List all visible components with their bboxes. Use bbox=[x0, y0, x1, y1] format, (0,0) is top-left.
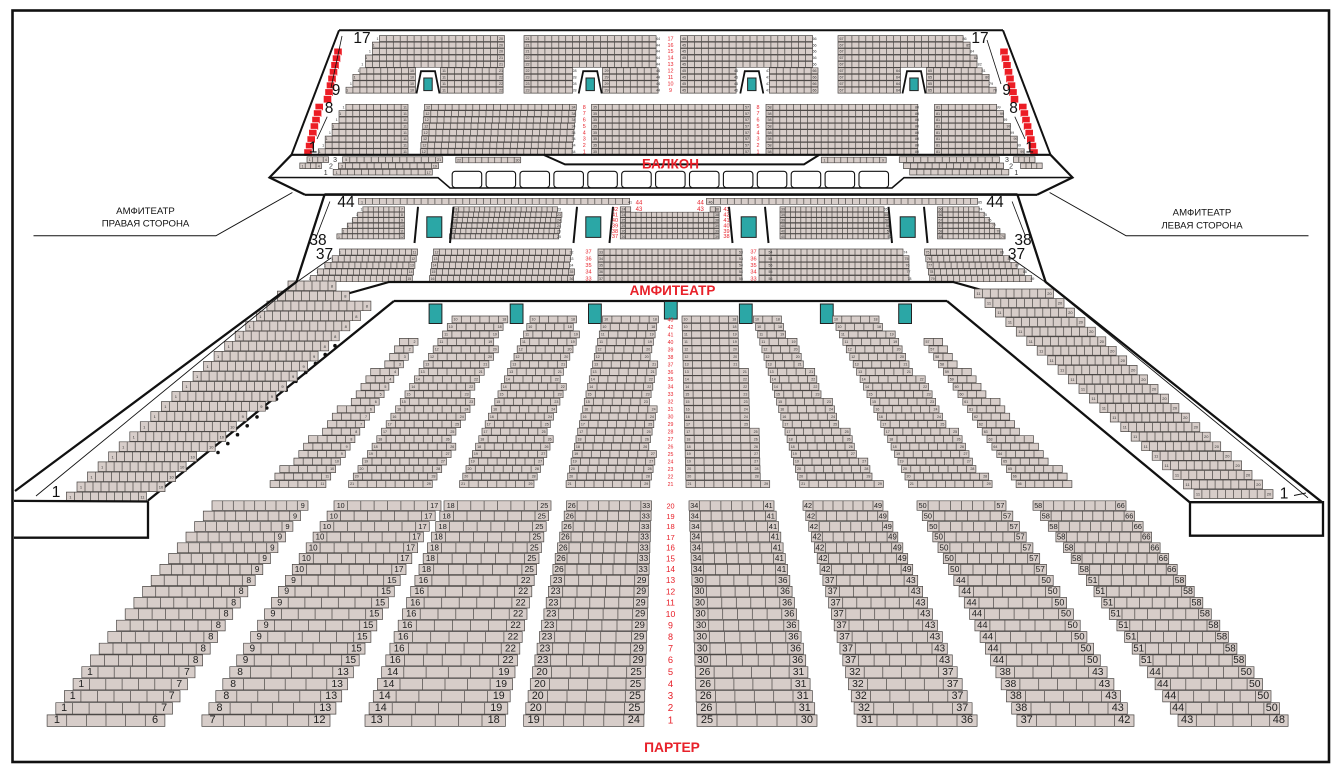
svg-text:4: 4 bbox=[318, 164, 320, 168]
svg-text:61: 61 bbox=[964, 400, 968, 404]
svg-text:26: 26 bbox=[668, 445, 674, 451]
svg-text:50: 50 bbox=[1067, 619, 1077, 630]
svg-text:19: 19 bbox=[650, 333, 654, 337]
svg-text:16: 16 bbox=[397, 407, 401, 411]
svg-text:66: 66 bbox=[1125, 512, 1133, 521]
svg-text:26: 26 bbox=[754, 445, 758, 449]
svg-text:26: 26 bbox=[700, 679, 712, 690]
svg-text:25: 25 bbox=[535, 522, 543, 531]
svg-text:12: 12 bbox=[424, 131, 428, 135]
svg-text:29: 29 bbox=[604, 82, 608, 86]
svg-text:57: 57 bbox=[745, 137, 749, 141]
svg-text:37: 37 bbox=[750, 250, 756, 256]
svg-text:20: 20 bbox=[1068, 310, 1073, 315]
svg-text:10: 10 bbox=[532, 318, 536, 322]
svg-text:75: 75 bbox=[926, 250, 930, 254]
svg-text:26: 26 bbox=[700, 690, 712, 702]
svg-text:20: 20 bbox=[687, 475, 691, 479]
svg-text:1: 1 bbox=[302, 164, 304, 168]
svg-text:25: 25 bbox=[744, 422, 748, 426]
svg-text:1: 1 bbox=[376, 37, 378, 41]
svg-text:25: 25 bbox=[629, 690, 641, 702]
svg-text:58: 58 bbox=[1072, 554, 1082, 563]
svg-text:45: 45 bbox=[682, 82, 686, 86]
svg-text:56: 56 bbox=[939, 213, 943, 217]
svg-text:20: 20 bbox=[499, 43, 503, 47]
svg-text:10: 10 bbox=[757, 325, 761, 329]
svg-text:58: 58 bbox=[1225, 643, 1236, 654]
svg-text:12: 12 bbox=[668, 69, 674, 75]
svg-text:29: 29 bbox=[632, 655, 644, 666]
svg-text:33: 33 bbox=[638, 564, 648, 574]
svg-text:АМФИТЕАТР: АМФИТЕАТР bbox=[1173, 208, 1232, 219]
svg-text:1: 1 bbox=[332, 125, 334, 129]
svg-text:39: 39 bbox=[781, 213, 785, 217]
svg-text:21: 21 bbox=[499, 56, 503, 60]
svg-text:44: 44 bbox=[656, 43, 660, 47]
svg-text:45: 45 bbox=[682, 43, 686, 47]
svg-text:9: 9 bbox=[1002, 82, 1011, 99]
svg-text:20: 20 bbox=[571, 467, 575, 471]
svg-text:22: 22 bbox=[508, 632, 519, 643]
svg-text:21: 21 bbox=[461, 482, 465, 486]
svg-text:76: 76 bbox=[988, 219, 992, 223]
svg-text:10: 10 bbox=[230, 424, 235, 429]
svg-text:23: 23 bbox=[927, 392, 931, 396]
svg-text:67: 67 bbox=[839, 63, 843, 67]
svg-text:24: 24 bbox=[937, 415, 941, 419]
svg-text:60: 60 bbox=[960, 392, 964, 396]
svg-text:1: 1 bbox=[325, 137, 327, 141]
svg-text:14: 14 bbox=[685, 385, 689, 389]
svg-text:63: 63 bbox=[984, 430, 988, 434]
svg-text:28: 28 bbox=[648, 467, 652, 471]
svg-text:38: 38 bbox=[715, 213, 719, 217]
svg-text:17: 17 bbox=[784, 422, 788, 426]
svg-text:82: 82 bbox=[978, 63, 982, 67]
svg-text:30: 30 bbox=[695, 597, 705, 607]
svg-text:24: 24 bbox=[548, 415, 552, 419]
svg-text:12: 12 bbox=[400, 235, 404, 239]
svg-text:14: 14 bbox=[506, 377, 510, 381]
svg-text:1: 1 bbox=[668, 715, 674, 726]
svg-text:29: 29 bbox=[604, 88, 608, 92]
svg-text:21: 21 bbox=[499, 63, 503, 67]
svg-text:17: 17 bbox=[882, 422, 886, 426]
svg-text:9: 9 bbox=[270, 609, 275, 619]
svg-text:25: 25 bbox=[630, 667, 642, 678]
svg-text:22: 22 bbox=[516, 597, 526, 607]
svg-text:81: 81 bbox=[936, 131, 940, 135]
svg-text:85: 85 bbox=[966, 43, 970, 47]
svg-text:66: 66 bbox=[812, 43, 816, 47]
svg-text:58: 58 bbox=[1200, 609, 1210, 619]
svg-text:50: 50 bbox=[934, 533, 943, 542]
svg-text:58: 58 bbox=[1064, 543, 1073, 552]
svg-text:57: 57 bbox=[745, 106, 749, 110]
svg-text:1: 1 bbox=[339, 250, 341, 254]
svg-text:20: 20 bbox=[1100, 339, 1105, 344]
svg-text:38: 38 bbox=[715, 208, 719, 212]
svg-text:13: 13 bbox=[337, 667, 349, 678]
svg-text:58: 58 bbox=[1042, 512, 1050, 521]
svg-text:22: 22 bbox=[668, 475, 674, 481]
svg-text:4: 4 bbox=[668, 679, 673, 690]
svg-text:20: 20 bbox=[1173, 406, 1178, 411]
svg-text:6: 6 bbox=[152, 714, 158, 726]
svg-text:19: 19 bbox=[666, 512, 674, 521]
svg-text:11: 11 bbox=[684, 340, 688, 344]
svg-text:20: 20 bbox=[797, 467, 801, 471]
svg-text:21: 21 bbox=[525, 50, 529, 54]
svg-text:15: 15 bbox=[387, 575, 397, 585]
svg-text:37: 37 bbox=[952, 690, 964, 702]
svg-text:25: 25 bbox=[540, 501, 548, 510]
svg-text:58: 58 bbox=[1208, 619, 1218, 630]
svg-text:54: 54 bbox=[739, 264, 743, 268]
svg-text:9: 9 bbox=[278, 533, 282, 542]
svg-text:23: 23 bbox=[551, 586, 561, 596]
svg-text:31: 31 bbox=[797, 690, 809, 702]
svg-text:35: 35 bbox=[593, 144, 597, 148]
svg-text:28: 28 bbox=[983, 475, 987, 479]
svg-text:14: 14 bbox=[774, 385, 778, 389]
svg-text:22: 22 bbox=[457, 159, 461, 163]
svg-text:13: 13 bbox=[319, 702, 331, 714]
svg-text:9: 9 bbox=[291, 575, 296, 585]
svg-text:12: 12 bbox=[598, 348, 602, 352]
svg-text:66: 66 bbox=[1142, 533, 1151, 542]
svg-text:45: 45 bbox=[682, 88, 686, 92]
svg-text:28: 28 bbox=[436, 467, 440, 471]
svg-text:50: 50 bbox=[924, 512, 932, 521]
svg-text:16: 16 bbox=[415, 586, 425, 596]
svg-text:74: 74 bbox=[979, 208, 983, 212]
svg-text:17: 17 bbox=[406, 543, 415, 552]
svg-text:12: 12 bbox=[848, 348, 852, 352]
svg-text:21: 21 bbox=[483, 363, 487, 367]
svg-text:22: 22 bbox=[525, 69, 529, 73]
svg-text:44: 44 bbox=[697, 200, 704, 206]
svg-text:20: 20 bbox=[1256, 482, 1261, 487]
svg-text:18: 18 bbox=[578, 437, 582, 441]
svg-text:9: 9 bbox=[250, 643, 255, 654]
svg-text:19: 19 bbox=[571, 340, 575, 344]
svg-text:80: 80 bbox=[985, 76, 989, 80]
svg-text:25: 25 bbox=[525, 564, 535, 574]
svg-text:81: 81 bbox=[936, 112, 940, 116]
svg-text:37: 37 bbox=[947, 679, 959, 690]
svg-text:40: 40 bbox=[781, 235, 785, 239]
svg-text:49: 49 bbox=[879, 512, 887, 521]
svg-text:3: 3 bbox=[333, 157, 337, 164]
svg-text:15: 15 bbox=[351, 643, 362, 654]
svg-text:19: 19 bbox=[498, 667, 510, 678]
svg-text:86: 86 bbox=[962, 37, 966, 41]
svg-text:37: 37 bbox=[828, 586, 838, 596]
svg-text:20: 20 bbox=[1079, 320, 1084, 325]
svg-text:57: 57 bbox=[1029, 554, 1039, 563]
svg-text:18: 18 bbox=[791, 445, 795, 449]
svg-text:1: 1 bbox=[373, 43, 375, 47]
svg-text:44: 44 bbox=[656, 63, 660, 67]
svg-text:1: 1 bbox=[369, 50, 371, 54]
svg-text:8: 8 bbox=[355, 430, 357, 434]
svg-text:20: 20 bbox=[499, 37, 503, 41]
svg-text:80: 80 bbox=[915, 137, 919, 141]
svg-text:34: 34 bbox=[571, 118, 575, 122]
svg-text:39: 39 bbox=[668, 347, 674, 353]
svg-text:30: 30 bbox=[516, 159, 520, 163]
svg-text:51: 51 bbox=[1118, 619, 1128, 630]
svg-text:17: 17 bbox=[383, 430, 387, 434]
svg-text:20: 20 bbox=[1110, 348, 1115, 353]
svg-text:36: 36 bbox=[792, 655, 804, 666]
svg-text:20: 20 bbox=[499, 50, 503, 54]
svg-text:16: 16 bbox=[406, 609, 416, 619]
svg-text:81: 81 bbox=[936, 106, 940, 110]
svg-text:14: 14 bbox=[409, 270, 413, 274]
svg-text:11: 11 bbox=[442, 82, 446, 86]
svg-text:20: 20 bbox=[488, 355, 492, 359]
svg-text:41: 41 bbox=[773, 543, 782, 552]
svg-text:22: 22 bbox=[510, 619, 520, 630]
svg-text:47: 47 bbox=[766, 88, 770, 92]
svg-text:1: 1 bbox=[365, 56, 367, 60]
svg-text:12: 12 bbox=[424, 125, 428, 129]
svg-text:17: 17 bbox=[666, 533, 675, 542]
svg-text:59: 59 bbox=[950, 377, 954, 381]
svg-text:44: 44 bbox=[961, 586, 971, 596]
svg-text:25: 25 bbox=[532, 533, 541, 542]
svg-text:29: 29 bbox=[764, 482, 768, 486]
svg-text:53: 53 bbox=[739, 257, 743, 261]
svg-text:58: 58 bbox=[935, 355, 939, 359]
svg-text:АМФИТЕАТР: АМФИТЕАТР bbox=[630, 283, 716, 298]
svg-text:26: 26 bbox=[622, 235, 626, 239]
svg-text:10: 10 bbox=[684, 318, 688, 322]
svg-text:20: 20 bbox=[1204, 434, 1209, 439]
svg-text:22: 22 bbox=[555, 377, 559, 381]
svg-text:46: 46 bbox=[708, 201, 712, 205]
svg-text:ЛЕВАЯ СТОРОНА: ЛЕВАЯ СТОРОНА bbox=[1161, 221, 1243, 232]
svg-text:81: 81 bbox=[981, 69, 985, 73]
svg-text:28: 28 bbox=[572, 82, 576, 86]
svg-text:11: 11 bbox=[599, 340, 603, 344]
svg-text:21: 21 bbox=[437, 158, 441, 162]
svg-text:66: 66 bbox=[1159, 554, 1169, 563]
svg-text:18: 18 bbox=[434, 533, 443, 542]
svg-text:34: 34 bbox=[571, 150, 575, 154]
svg-text:4: 4 bbox=[583, 130, 586, 136]
svg-text:30: 30 bbox=[694, 575, 704, 585]
svg-text:50: 50 bbox=[950, 564, 960, 574]
svg-text:58: 58 bbox=[1034, 501, 1042, 510]
svg-text:17: 17 bbox=[424, 512, 432, 521]
svg-text:18: 18 bbox=[502, 318, 506, 322]
svg-text:23: 23 bbox=[546, 609, 556, 619]
svg-text:24: 24 bbox=[622, 213, 626, 217]
svg-text:28: 28 bbox=[646, 475, 650, 479]
svg-text:12: 12 bbox=[423, 137, 427, 141]
svg-text:21: 21 bbox=[558, 370, 562, 374]
svg-text:20: 20 bbox=[666, 501, 674, 510]
svg-text:12: 12 bbox=[426, 106, 430, 110]
svg-text:33: 33 bbox=[599, 250, 603, 254]
svg-text:29: 29 bbox=[634, 619, 644, 630]
svg-text:55: 55 bbox=[769, 270, 773, 274]
svg-text:28: 28 bbox=[668, 430, 674, 436]
svg-text:21: 21 bbox=[525, 37, 529, 41]
svg-text:57: 57 bbox=[745, 112, 749, 116]
svg-text:15: 15 bbox=[500, 392, 504, 396]
svg-text:20: 20 bbox=[1058, 301, 1063, 306]
svg-text:36: 36 bbox=[784, 609, 794, 619]
svg-text:7: 7 bbox=[161, 702, 167, 714]
svg-text:42: 42 bbox=[807, 512, 815, 521]
svg-text:10: 10 bbox=[309, 543, 318, 552]
svg-text:6: 6 bbox=[668, 655, 673, 665]
svg-text:15: 15 bbox=[407, 392, 411, 396]
svg-text:24: 24 bbox=[551, 407, 555, 411]
svg-text:20: 20 bbox=[907, 475, 911, 479]
svg-text:15: 15 bbox=[869, 392, 873, 396]
svg-text:8: 8 bbox=[216, 702, 222, 714]
svg-text:14: 14 bbox=[862, 377, 866, 381]
svg-text:10: 10 bbox=[410, 76, 414, 80]
svg-text:81: 81 bbox=[936, 125, 940, 129]
svg-text:27: 27 bbox=[538, 460, 542, 464]
svg-text:17: 17 bbox=[668, 36, 674, 42]
svg-text:36: 36 bbox=[961, 714, 973, 726]
svg-text:22: 22 bbox=[649, 377, 653, 381]
svg-text:8: 8 bbox=[230, 679, 236, 690]
svg-text:58: 58 bbox=[940, 363, 944, 367]
svg-text:21: 21 bbox=[910, 482, 914, 486]
svg-text:18: 18 bbox=[776, 318, 780, 322]
svg-text:1: 1 bbox=[316, 270, 318, 274]
svg-text:5: 5 bbox=[668, 666, 673, 677]
svg-text:13: 13 bbox=[325, 690, 337, 702]
svg-text:9: 9 bbox=[668, 620, 673, 630]
svg-text:21: 21 bbox=[525, 43, 529, 47]
svg-text:11: 11 bbox=[444, 333, 448, 337]
svg-text:8: 8 bbox=[583, 105, 586, 111]
svg-text:19: 19 bbox=[687, 452, 691, 456]
svg-text:99: 99 bbox=[996, 106, 1000, 110]
svg-text:58: 58 bbox=[1057, 533, 1066, 542]
svg-text:27: 27 bbox=[754, 452, 758, 456]
svg-text:14: 14 bbox=[772, 377, 776, 381]
svg-text:14: 14 bbox=[685, 377, 689, 381]
svg-text:66: 66 bbox=[812, 82, 816, 86]
svg-text:23: 23 bbox=[469, 400, 473, 404]
svg-text:34: 34 bbox=[571, 131, 575, 135]
svg-text:1: 1 bbox=[356, 213, 358, 217]
svg-text:7: 7 bbox=[401, 208, 403, 212]
svg-text:20: 20 bbox=[568, 348, 572, 352]
svg-text:66: 66 bbox=[1013, 475, 1017, 479]
svg-text:19: 19 bbox=[687, 460, 691, 464]
svg-text:99: 99 bbox=[1000, 112, 1004, 116]
svg-text:36: 36 bbox=[788, 632, 799, 643]
svg-text:17: 17 bbox=[412, 533, 421, 542]
svg-text:16: 16 bbox=[875, 407, 879, 411]
svg-text:45: 45 bbox=[682, 37, 686, 41]
svg-text:19: 19 bbox=[474, 452, 478, 456]
svg-text:34: 34 bbox=[599, 257, 603, 261]
svg-text:55: 55 bbox=[769, 264, 773, 268]
svg-text:17: 17 bbox=[430, 501, 438, 510]
svg-text:26: 26 bbox=[545, 445, 549, 449]
svg-text:25: 25 bbox=[628, 702, 640, 714]
svg-text:11: 11 bbox=[684, 333, 688, 337]
svg-text:12: 12 bbox=[435, 348, 439, 352]
svg-text:21: 21 bbox=[668, 482, 674, 488]
svg-text:15: 15 bbox=[402, 400, 406, 404]
svg-text:20: 20 bbox=[1141, 377, 1146, 382]
svg-text:4: 4 bbox=[757, 130, 760, 136]
svg-text:22: 22 bbox=[499, 82, 503, 86]
svg-text:14: 14 bbox=[666, 565, 676, 574]
svg-text:8: 8 bbox=[350, 437, 352, 441]
svg-text:5: 5 bbox=[384, 385, 386, 389]
svg-text:37: 37 bbox=[599, 277, 603, 281]
svg-text:23: 23 bbox=[544, 619, 554, 630]
svg-text:6: 6 bbox=[375, 400, 377, 404]
svg-text:19: 19 bbox=[893, 340, 897, 344]
svg-text:58: 58 bbox=[767, 106, 771, 110]
svg-text:15: 15 bbox=[375, 597, 385, 607]
svg-text:15: 15 bbox=[668, 49, 674, 55]
svg-text:12: 12 bbox=[430, 355, 434, 359]
svg-text:29: 29 bbox=[635, 609, 645, 619]
svg-text:23: 23 bbox=[557, 213, 561, 217]
svg-text:66: 66 bbox=[812, 50, 816, 54]
svg-text:19: 19 bbox=[493, 690, 505, 702]
svg-text:67: 67 bbox=[839, 50, 843, 54]
svg-text:54: 54 bbox=[769, 257, 773, 261]
svg-text:41: 41 bbox=[628, 201, 632, 205]
svg-text:14: 14 bbox=[503, 385, 507, 389]
svg-text:43: 43 bbox=[920, 609, 930, 619]
svg-text:44: 44 bbox=[656, 69, 660, 73]
svg-text:19: 19 bbox=[527, 714, 539, 726]
svg-text:77: 77 bbox=[992, 224, 996, 228]
svg-text:12: 12 bbox=[851, 355, 855, 359]
svg-text:12: 12 bbox=[596, 355, 600, 359]
svg-text:66: 66 bbox=[1134, 522, 1142, 531]
svg-text:19: 19 bbox=[795, 460, 799, 464]
svg-text:58: 58 bbox=[767, 144, 771, 148]
svg-text:28: 28 bbox=[535, 467, 539, 471]
svg-text:22: 22 bbox=[525, 56, 529, 60]
svg-text:60: 60 bbox=[955, 385, 959, 389]
svg-text:20: 20 bbox=[493, 348, 497, 352]
svg-text:11: 11 bbox=[442, 69, 446, 73]
svg-text:84: 84 bbox=[970, 50, 974, 54]
svg-text:12: 12 bbox=[422, 144, 426, 148]
svg-text:12: 12 bbox=[666, 586, 676, 596]
svg-text:1: 1 bbox=[336, 171, 338, 175]
svg-text:23: 23 bbox=[553, 575, 563, 585]
svg-text:10: 10 bbox=[169, 475, 174, 480]
svg-text:27: 27 bbox=[862, 460, 866, 464]
svg-text:23: 23 bbox=[557, 208, 561, 212]
svg-text:66: 66 bbox=[812, 88, 816, 92]
svg-text:2: 2 bbox=[409, 348, 411, 352]
svg-text:65: 65 bbox=[928, 76, 932, 80]
